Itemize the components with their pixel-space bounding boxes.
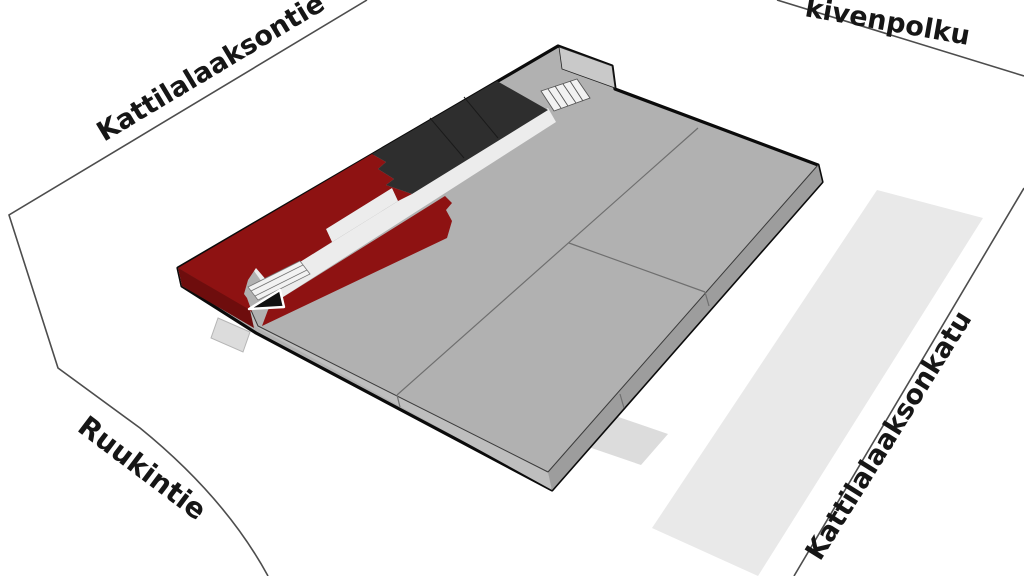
- site-map-page: Kattilalaaksontie kivenpolku Ruukintie K…: [0, 0, 1024, 576]
- street-label-kattilalaaksontie: Kattilalaaksontie: [92, 0, 331, 148]
- street-label-ruukintie: Ruukintie: [72, 409, 213, 527]
- site-map-canvas: Kattilalaaksontie kivenpolku Ruukintie K…: [0, 0, 1024, 576]
- street-label-kivenpolku: kivenpolku: [803, 0, 973, 52]
